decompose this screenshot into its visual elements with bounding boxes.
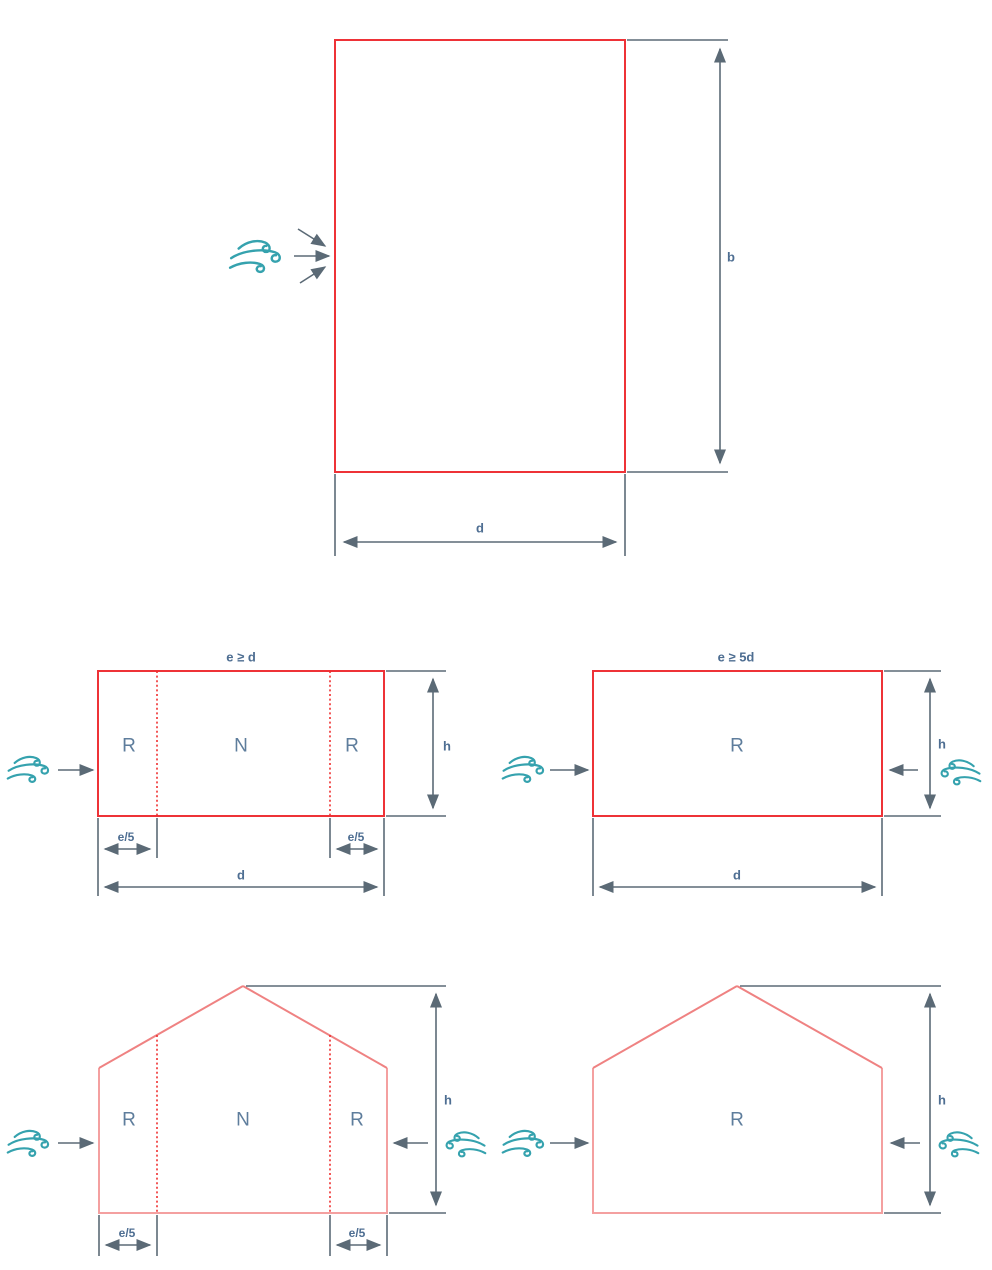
- zone-label-r: R: [350, 1111, 364, 1130]
- wind-arrow-lower: [300, 267, 325, 283]
- wind-icon: [228, 230, 292, 282]
- bottom-dimensions: [99, 1215, 387, 1256]
- elevation-e-ge-d: [58, 671, 446, 896]
- dimension-label-h: h: [443, 740, 451, 753]
- zone-label-n: N: [236, 1111, 250, 1130]
- h-dimension: [246, 986, 446, 1213]
- wind-arrow-upper: [298, 229, 325, 246]
- h-dimension: [386, 671, 446, 816]
- dimension-label-e5: e/5: [118, 831, 135, 843]
- zone-label-r: R: [122, 1111, 136, 1130]
- dimension-label-h: h: [444, 1094, 452, 1107]
- dimension-label-e5: e/5: [119, 1227, 136, 1239]
- wind-icon-mirrored: [930, 1124, 980, 1164]
- plan-view-b-dimension: [627, 40, 728, 472]
- diagram-geometry: [0, 0, 992, 1270]
- dimension-label-d: d: [733, 869, 741, 882]
- wind-icon: [501, 748, 553, 790]
- walls-and-base: [99, 1068, 387, 1213]
- dimension-label-h: h: [938, 1094, 946, 1107]
- roof-left: [593, 986, 737, 1068]
- wind-icon: [501, 1122, 553, 1164]
- wind-icon: [6, 748, 58, 790]
- wind-zones-diagram-page: b d e ≥ d R N R h e/5 e/5 d e ≥ 5d R h d…: [0, 0, 992, 1270]
- dimension-label-e5: e/5: [348, 831, 365, 843]
- zone-label-r: R: [730, 1111, 744, 1130]
- dimension-label-e5: e/5: [349, 1227, 366, 1239]
- dimension-label-d: d: [476, 522, 484, 535]
- zone-label-r: R: [730, 737, 744, 756]
- elevation-e-ge-5d: [550, 671, 941, 896]
- roof-right: [243, 986, 387, 1068]
- plan-view-wind-arrows: [294, 229, 329, 283]
- dimension-label-b: b: [727, 251, 735, 264]
- plan-view-d-dimension: [335, 474, 625, 556]
- h-dimension: [740, 986, 941, 1213]
- gable-elevation-zoned: [58, 986, 446, 1256]
- gable-elevation-single: [550, 986, 941, 1213]
- zone-label-r: R: [122, 737, 136, 756]
- h-dimension: [884, 671, 941, 816]
- dimension-label-h: h: [938, 738, 946, 751]
- plan-view-building-outline: [335, 40, 625, 472]
- wind-icon-mirrored: [932, 752, 982, 792]
- dimension-label-d: d: [237, 869, 245, 882]
- diagram-title: e ≥ 5d: [718, 651, 755, 664]
- diagram-title: e ≥ d: [226, 651, 256, 664]
- wind-icon-mirrored: [437, 1124, 487, 1164]
- roof-left: [99, 986, 243, 1068]
- walls-and-base: [593, 1068, 882, 1213]
- wind-icon: [6, 1122, 58, 1164]
- zone-label-n: N: [234, 737, 248, 756]
- bottom-dimensions: [98, 818, 384, 896]
- roof-right: [737, 986, 882, 1068]
- zone-label-r: R: [345, 737, 359, 756]
- bottom-dimensions: [593, 818, 882, 896]
